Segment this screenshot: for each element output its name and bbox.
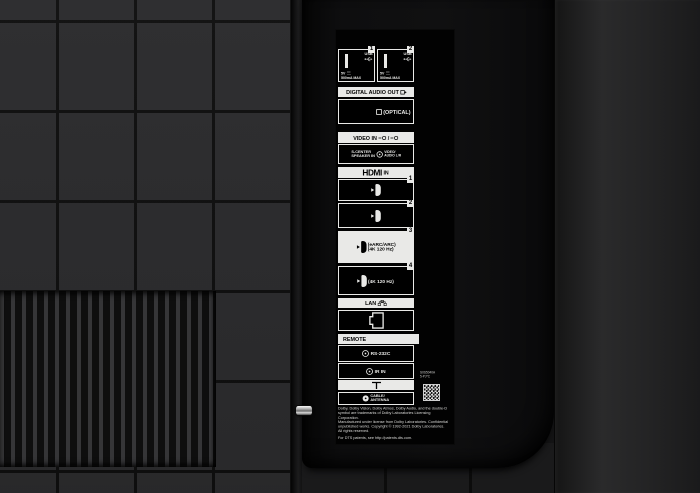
- jack-port-icon: [366, 367, 374, 375]
- hdmi-port-icon: [375, 210, 380, 222]
- hdmi-port-1-box: 1: [338, 179, 414, 201]
- hdmi-logo: HDMI: [363, 168, 383, 177]
- antenna-icon: [370, 381, 383, 389]
- antenna-symbol-strip: [338, 380, 414, 390]
- minijack-adapter-icon: [390, 135, 398, 140]
- rj45-port-icon: [368, 312, 385, 329]
- ir-in-label: IR IN: [375, 368, 386, 373]
- sticker-line-2: 5-PJ*C: [420, 375, 435, 379]
- ir-in-port-box: IR IN: [338, 363, 414, 379]
- usb-current: 500mA MAX: [341, 76, 361, 80]
- minijack-adapter-icon: [378, 135, 386, 140]
- usb-trident-icon: [364, 56, 373, 61]
- port-number-badge: 2: [407, 46, 414, 53]
- port-number-badge: 1: [368, 46, 375, 53]
- dolby-trademark-text: Dolby, Dolby Vision, Dolby Atmos, Dolby …: [338, 407, 449, 420]
- separator: /: [388, 135, 390, 141]
- usb-voltage: 5V: [380, 71, 384, 75]
- hdmi-port-icon: [361, 241, 366, 253]
- port-number-badge: 1: [407, 176, 414, 183]
- s-center-label-2: SPEAKER IN: [351, 154, 375, 158]
- hdmi4-4k-label: (4K 120 Hz): [368, 278, 394, 283]
- arrow-icon: [357, 245, 360, 249]
- usb-section: 1 USB 5V 500mA MAX 2: [338, 49, 414, 82]
- qr-code: [424, 385, 439, 400]
- usb-port-1: 1 USB 5V 500mA MAX: [338, 49, 375, 82]
- usb-current: 500mA MAX: [380, 76, 400, 80]
- cable-label-2: ANTENNA: [371, 399, 390, 403]
- hdmi-port-3-box: 3 (eARC/ARC) (4K 120 Hz): [338, 231, 414, 263]
- hdmi3-4k-label: (4K 120 Hz): [367, 247, 395, 252]
- screw: [296, 406, 312, 415]
- hdmi-in-strip: HDMI IN: [338, 167, 414, 178]
- usb-voltage: 5V: [341, 71, 345, 75]
- tv-back-photo: 1 USB 5V 500mA MAX 2: [0, 0, 700, 493]
- s-center-right-2: AUDIO L/R: [384, 154, 401, 157]
- optical-label: (OPTICAL): [383, 109, 410, 115]
- dts-patents-text: For DTS patents, see http://patents.dts.…: [338, 436, 449, 440]
- hdmi-port-icon: [375, 184, 380, 196]
- coax-port-icon: [362, 395, 369, 402]
- arrow-icon: [371, 188, 374, 192]
- model-sticker: S0S5040A 5-PJ*C: [420, 371, 435, 379]
- s-center-speaker-in-box: S-CENTER SPEAKER IN VIDEO/ AUDIO L/R: [338, 144, 414, 164]
- optical-port-icon: [376, 109, 382, 115]
- lan-label: LAN: [365, 300, 376, 306]
- jack-port-icon: [376, 150, 383, 157]
- remote-strip: REMOTE: [338, 334, 419, 344]
- hdmi-in-suffix: IN: [384, 170, 389, 175]
- jack-port-icon: [362, 350, 370, 358]
- hdmi-port-4-box: 4 (4K 120 Hz): [338, 266, 414, 295]
- connector-label-panel: 1 USB 5V 500mA MAX 2: [336, 30, 454, 444]
- right-back-panel: [554, 0, 700, 493]
- dolby-license-text: Manufactured under license from Dolby La…: [338, 420, 449, 433]
- video-in-label: VIDEO IN: [353, 135, 377, 141]
- digital-audio-out-strip: DIGITAL AUDIO OUT: [338, 87, 414, 97]
- video-in-strip: VIDEO IN /: [338, 132, 414, 143]
- usb-slot-icon: [384, 54, 387, 68]
- port-number-badge: 2: [407, 200, 414, 207]
- lan-port-box: [338, 310, 414, 331]
- rs232c-label: RS-232C: [371, 351, 391, 356]
- lan-strip: LAN: [338, 298, 414, 308]
- optical-out-icon: [400, 89, 407, 94]
- speaker-vent-grille: [0, 291, 216, 467]
- remote-label: REMOTE: [343, 336, 366, 342]
- dc-symbol-icon: [347, 71, 351, 74]
- port-number-badge: 4: [407, 263, 414, 270]
- dc-symbol-icon: [386, 71, 390, 74]
- usb-trident-icon: [403, 56, 412, 61]
- network-icon: [378, 300, 387, 306]
- legal-text: Dolby, Dolby Vision, Dolby Atmos, Dolby …: [338, 407, 449, 440]
- rs232c-port-box: RS-232C: [338, 345, 414, 362]
- hdmi-port-icon: [362, 275, 367, 287]
- cable-antenna-box: CABLE/ ANTENNA: [338, 392, 414, 405]
- usb-port-2: 2 USB 5V 500mA MAX: [377, 49, 414, 82]
- arrow-icon: [358, 279, 361, 283]
- port-number-badge: 3: [407, 228, 414, 235]
- arrow-icon: [371, 214, 374, 218]
- optical-port-box: (OPTICAL): [338, 99, 414, 124]
- digital-audio-out-label: DIGITAL AUDIO OUT: [346, 89, 399, 95]
- usb-slot-icon: [345, 54, 348, 68]
- hdmi-port-2-box: 2: [338, 203, 414, 228]
